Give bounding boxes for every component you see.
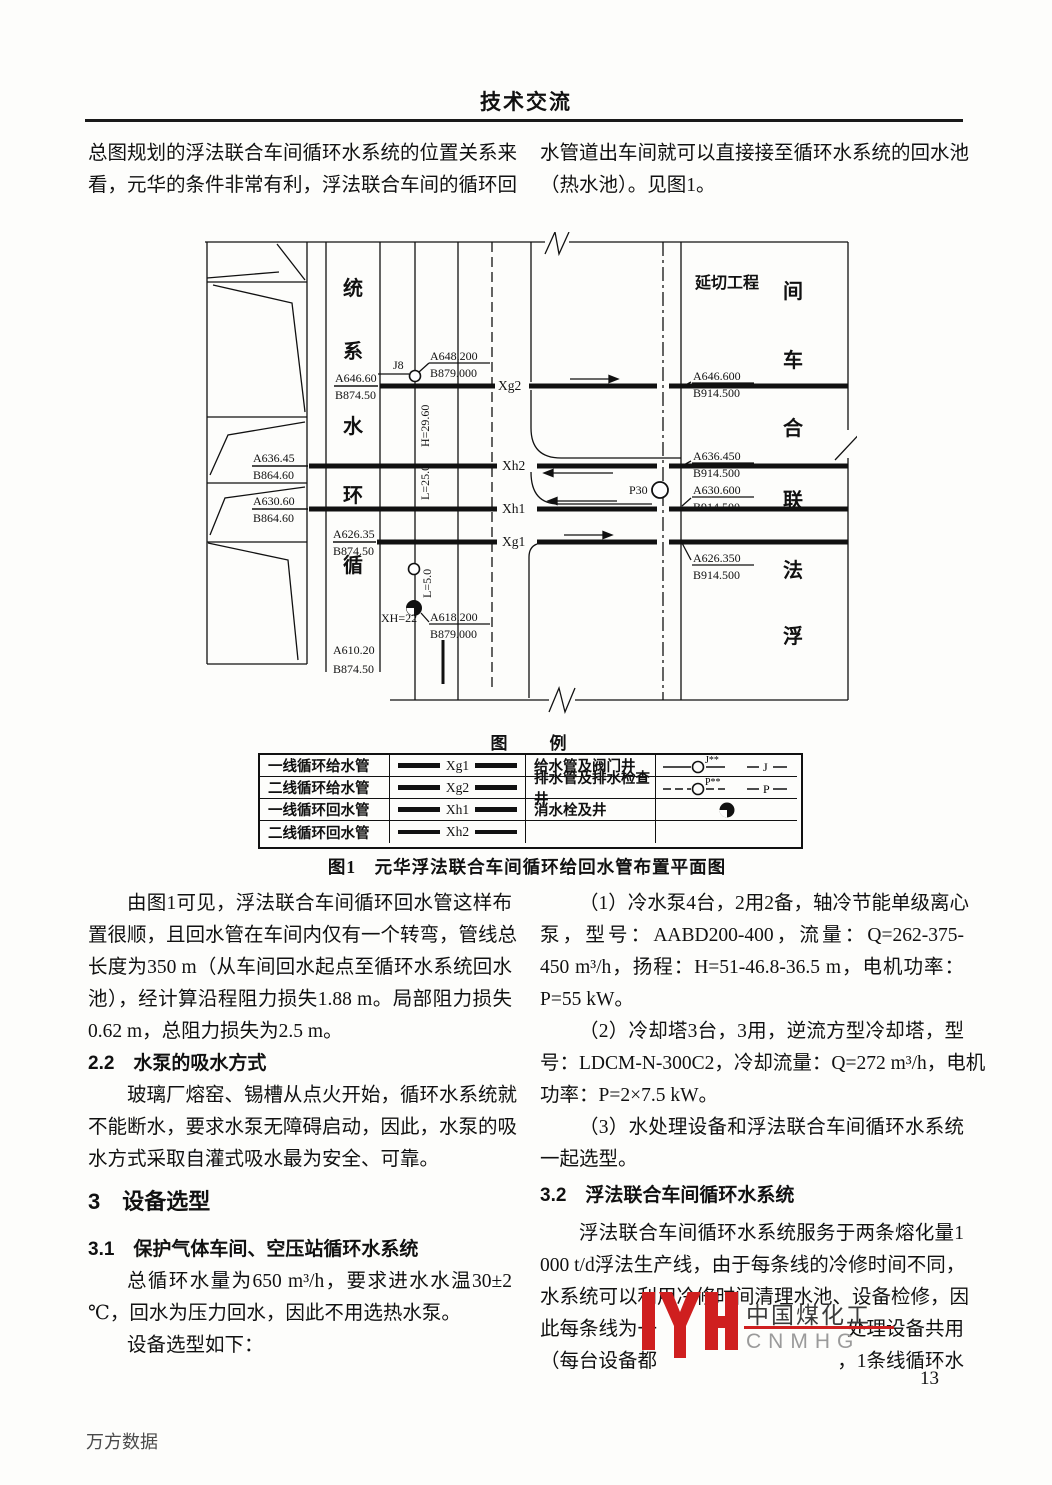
legend-label: 一线循环给水管 bbox=[260, 755, 390, 777]
text-line: （3）水处理设备和浮法联合车间循环水系统 bbox=[540, 1112, 964, 1144]
zone-label: 延切工程 bbox=[694, 273, 759, 292]
hydrant-icon bbox=[719, 802, 734, 817]
text-line: 0.62 m，总阻力损失为2.5 m。 bbox=[88, 1016, 512, 1048]
text-line: 功率：P=2×7.5 kW。 bbox=[540, 1080, 964, 1112]
text-line: 一起选型。 bbox=[540, 1144, 964, 1176]
pipe-label: Xh1 bbox=[502, 501, 525, 516]
page-header: 技术交流 bbox=[0, 86, 1052, 116]
legend-well-symbol: P** P bbox=[656, 777, 797, 799]
break-symbol-right bbox=[835, 428, 857, 460]
svg-text:联: 联 bbox=[783, 489, 803, 512]
svg-text:环: 环 bbox=[343, 485, 363, 507]
elevation-label: B879.000 bbox=[430, 366, 477, 380]
arrow-right-icon bbox=[609, 376, 618, 383]
svg-text:J**: J** bbox=[705, 755, 719, 766]
elevation-label: B914.500 bbox=[693, 466, 740, 480]
svg-text:循: 循 bbox=[343, 553, 363, 577]
pipes bbox=[309, 386, 848, 542]
break-symbol-top bbox=[545, 232, 569, 254]
page-number: 13 bbox=[920, 1368, 939, 1390]
elevation-label: A626.350 bbox=[693, 551, 741, 565]
inspection-well-icon bbox=[693, 783, 704, 794]
elevation-label: A646.600 bbox=[693, 369, 741, 383]
intro-right-column: 水管道出车间就可以直接接至循环水系统的回水池 （热水池）。见图1。 bbox=[540, 138, 964, 202]
pipe-bend-down bbox=[529, 544, 537, 698]
figure1-piping-plan: Xg2 Xh2 Xh1 Xg1 A646.60 B874.50 A636.45 … bbox=[197, 232, 857, 717]
legend-label: 二线循环回水管 bbox=[260, 821, 390, 843]
watermark-logo-icon bbox=[642, 1292, 738, 1358]
legend-label: 二线循环给水管 bbox=[260, 777, 390, 799]
document-page: 技术交流 总图规划的浮法联合车间循环水系统的位置关系来 看，元华的条件非常有利，… bbox=[0, 0, 1052, 1485]
svg-text:系: 系 bbox=[343, 340, 363, 363]
legend-pipe-symbol: Xh1 bbox=[390, 799, 526, 821]
elevation-label: A636.450 bbox=[693, 449, 741, 463]
section-heading-3: 3 设备选型 bbox=[88, 1176, 512, 1234]
legend-pipe-symbol: Xg1 bbox=[390, 755, 526, 777]
text-line: 号：LDCM-N-300C2，冷却流量：Q=272 m³/h，电机 bbox=[540, 1048, 964, 1080]
elevation-label: B879.000 bbox=[430, 627, 477, 641]
text-line: ℃，回水为压力回水，因此不用选热水泵。 bbox=[88, 1298, 512, 1330]
valve-well-icon bbox=[693, 761, 704, 772]
watermark-text-en: CNMHG bbox=[746, 1330, 860, 1354]
header-rule bbox=[85, 119, 963, 122]
arrow-right-icon bbox=[603, 532, 612, 539]
text-line: 池），经计算沿程阻力损失1.88 m。局部阻力损失 bbox=[88, 984, 512, 1016]
elevation-label: B864.60 bbox=[253, 511, 294, 525]
svg-text:车: 车 bbox=[783, 348, 803, 372]
elevation-label: A648.200 bbox=[430, 349, 478, 363]
flow-arrows bbox=[544, 376, 618, 539]
legend-pipe-symbol: Xg2 bbox=[390, 777, 526, 799]
text-line: 玻璃厂熔窑、锡槽从点火开始，循环水系统就 bbox=[88, 1080, 512, 1112]
pipe-label: Xh2 bbox=[502, 458, 525, 473]
well-p30-icon bbox=[652, 482, 668, 498]
section-heading-2-2: 2.2 水泵的吸水方式 bbox=[88, 1048, 512, 1080]
watermark: 中国煤化工 CNMHG bbox=[642, 1288, 910, 1366]
valve-well-j8-icon bbox=[410, 371, 421, 382]
well-label: P30 bbox=[629, 483, 648, 497]
dim-label: L=5.0 bbox=[420, 569, 434, 598]
dim-label: L=25.0 bbox=[418, 465, 432, 500]
legend-title: 图例 bbox=[258, 729, 799, 754]
text-line: （热水池）。见图1。 bbox=[540, 170, 964, 202]
legend-label: 排水管及排水检查井 bbox=[526, 777, 656, 799]
text-line: 置很顺，且回水管在车间内仅有一个转弯，管线总 bbox=[88, 920, 512, 952]
legend-label: 一线循环回水管 bbox=[260, 799, 390, 821]
text-line: 总图规划的浮法联合车间循环水系统的位置关系来 bbox=[88, 138, 512, 170]
pipe-bend-upper bbox=[531, 390, 681, 458]
svg-text:P**: P** bbox=[705, 777, 721, 788]
elevation-label: B864.60 bbox=[253, 468, 294, 482]
text-line: （1）冷水泵4台，2用2备，轴冷节能单级离心 bbox=[540, 888, 964, 920]
text-line: 浮法联合车间循环水系统服务于两条熔化量1 bbox=[540, 1218, 964, 1250]
svg-text:统: 统 bbox=[343, 276, 363, 300]
text-line: 水方式采取自灌式吸水最为安全、可靠。 bbox=[88, 1144, 512, 1176]
pipe-label: Xg2 bbox=[498, 378, 521, 393]
footer-wanfang: 万方数据 bbox=[86, 1428, 158, 1454]
text-line: 设备选型如下： bbox=[88, 1330, 512, 1362]
figure-caption: 图1 元华浮法联合车间循环给回水管布置平面图 bbox=[197, 854, 857, 879]
section-heading-3-2: 3.2 浮法联合车间循环水系统 bbox=[540, 1176, 964, 1218]
svg-text:间: 间 bbox=[783, 280, 803, 303]
legend-label: 消水栓及井 bbox=[526, 799, 656, 821]
svg-text:法: 法 bbox=[783, 558, 803, 582]
elevation-label: A630.60 bbox=[253, 494, 295, 508]
elevation-label: B914.500 bbox=[693, 568, 740, 582]
arrow-left-icon bbox=[544, 470, 553, 477]
text-line: 不能断水，要求水泵无障碍启动，因此，水泵的吸 bbox=[88, 1112, 512, 1144]
text-line: 水管道出车间就可以直接接至循环水系统的回水池 bbox=[540, 138, 964, 170]
elevation-label: B874.50 bbox=[335, 388, 376, 402]
elevation-label: B874.50 bbox=[333, 662, 374, 676]
legend-hydrant-symbol bbox=[656, 799, 797, 821]
break-symbol-bottom bbox=[549, 688, 575, 712]
text-line: （2）冷却塔3台，3用，逆流方型冷却塔，型 bbox=[540, 1016, 964, 1048]
structure-lines bbox=[205, 232, 857, 712]
pipe-label: Xg1 bbox=[502, 534, 525, 549]
svg-text:水: 水 bbox=[343, 415, 364, 438]
elevation-label: A618.200 bbox=[430, 610, 478, 624]
elevation-label: A626.35 bbox=[333, 527, 375, 541]
dim-label: XH=22 bbox=[381, 611, 417, 625]
legend-table: 一线循环给水管 Xg1 给水管及阀门井 J** J 二线循环给水管 Xg2 排水… bbox=[258, 753, 803, 849]
text-line: 看，元华的条件非常有利，浮法联合车间的循环回 bbox=[88, 170, 512, 202]
watermark-underline bbox=[744, 1326, 894, 1329]
elevation-label: B914.500 bbox=[693, 386, 740, 400]
elevation-label: A610.20 bbox=[333, 643, 375, 657]
intro-left-column: 总图规划的浮法联合车间循环水系统的位置关系来 看，元华的条件非常有利，浮法联合车… bbox=[88, 138, 512, 202]
text-line: P=55 kW。 bbox=[540, 984, 964, 1016]
svg-text:浮: 浮 bbox=[783, 624, 803, 648]
dim-label: H=29.60 bbox=[418, 405, 432, 447]
text-line: 450 m³/h，扬程：H=51-46.8-36.5 m，电机功率： bbox=[540, 952, 964, 984]
svg-text:J: J bbox=[763, 760, 768, 774]
body-left-column: 由图1可见，浮法联合车间循环回水管这样布 置很顺，且回水管在车间内仅有一个转弯，… bbox=[88, 888, 512, 1362]
legend-pipe-symbol: Xh2 bbox=[390, 821, 526, 843]
well-label: J8 bbox=[393, 358, 404, 372]
legend-well-symbol: J** J bbox=[656, 755, 797, 777]
elevation-label: A636.45 bbox=[253, 451, 295, 465]
elevation-label: B914.500 bbox=[693, 500, 740, 514]
elevation-label: A630.600 bbox=[693, 483, 741, 497]
svg-text:合: 合 bbox=[783, 416, 804, 440]
section-heading-3-1: 3.1 保护气体车间、空压站循环水系统 bbox=[88, 1234, 512, 1266]
watermark-text-cn: 中国煤化工 bbox=[746, 1296, 871, 1330]
elevation-label: A646.60 bbox=[335, 371, 377, 385]
legend-label bbox=[526, 821, 656, 843]
text-line: 总循环水量为650 m³/h，要求进水水温30±2 bbox=[88, 1266, 512, 1298]
text-line: 长度为350 m（从车间回水起点至循环水系统回水 bbox=[88, 952, 512, 984]
text-line: 000 t/d浮法生产线，由于每条线的冷修时间不同， bbox=[540, 1250, 964, 1282]
text-line: 由图1可见，浮法联合车间循环回水管这样布 bbox=[88, 888, 512, 920]
valve-well-icon bbox=[409, 564, 420, 575]
text-line: 泵，型号：AABD200-400，流量：Q=262-375- bbox=[540, 920, 964, 952]
legend-empty-cell bbox=[656, 821, 797, 843]
svg-text:P: P bbox=[763, 782, 770, 796]
